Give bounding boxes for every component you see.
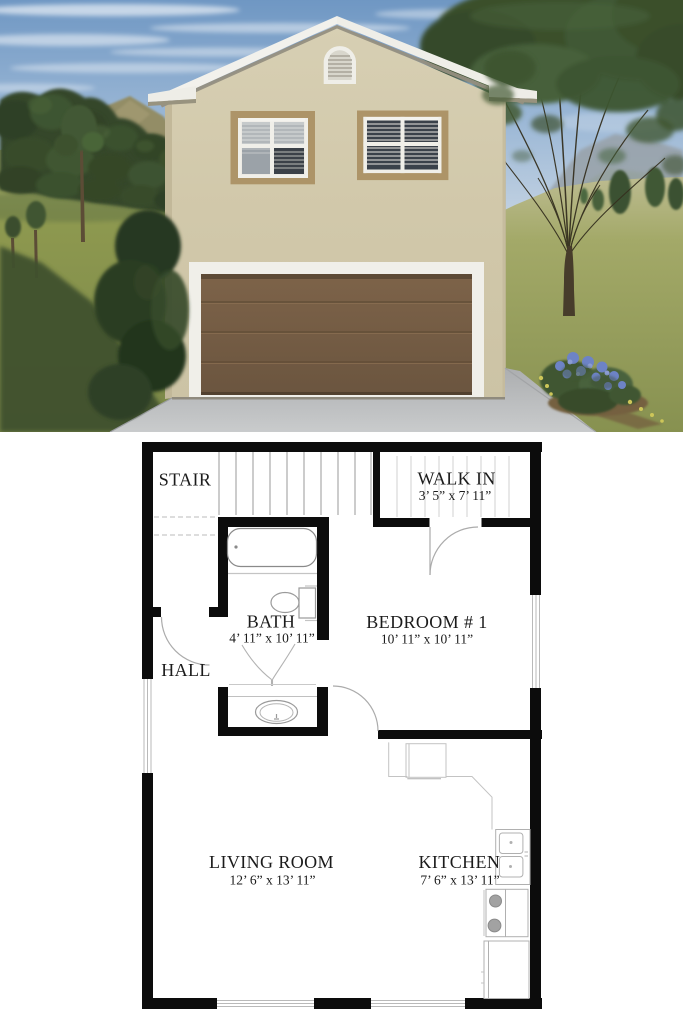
svg-text:STAIR: STAIR xyxy=(159,470,212,490)
svg-text:7’ 6” x 13’ 11”: 7’ 6” x 13’ 11” xyxy=(420,873,499,888)
svg-text:3’ 5” x 7’ 11”: 3’ 5” x 7’ 11” xyxy=(419,488,491,503)
svg-text:BATH: BATH xyxy=(247,612,296,632)
svg-text:4’ 11” x 10’ 11”: 4’ 11” x 10’ 11” xyxy=(229,630,314,645)
svg-text:HALL: HALL xyxy=(161,660,211,680)
svg-text:KITCHEN: KITCHEN xyxy=(419,852,501,872)
svg-text:10’ 11” x 10’ 11”: 10’ 11” x 10’ 11” xyxy=(381,632,473,647)
svg-text:LIVING ROOM: LIVING ROOM xyxy=(209,852,334,872)
svg-text:BEDROOM # 1: BEDROOM # 1 xyxy=(366,612,487,632)
svg-text:12’ 6” x 13’ 11”: 12’ 6” x 13’ 11” xyxy=(230,873,316,888)
svg-text:WALK IN: WALK IN xyxy=(417,469,495,489)
